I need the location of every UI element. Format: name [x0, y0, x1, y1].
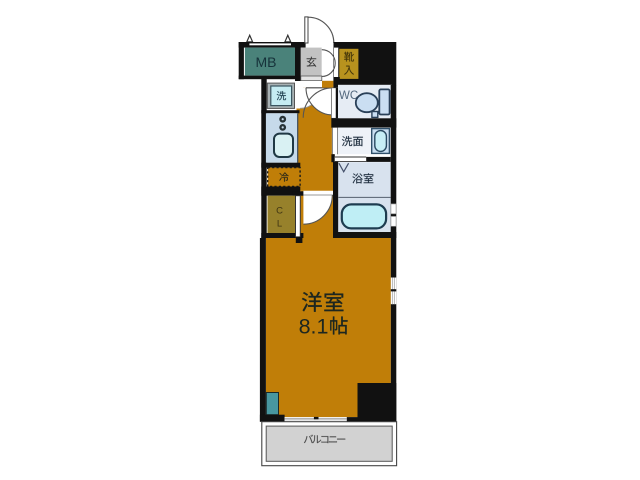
svg-text:MB: MB — [256, 54, 277, 70]
svg-text:8.1: 8.1 — [299, 315, 329, 339]
svg-text:L: L — [277, 218, 282, 229]
svg-text:C: C — [276, 205, 283, 216]
